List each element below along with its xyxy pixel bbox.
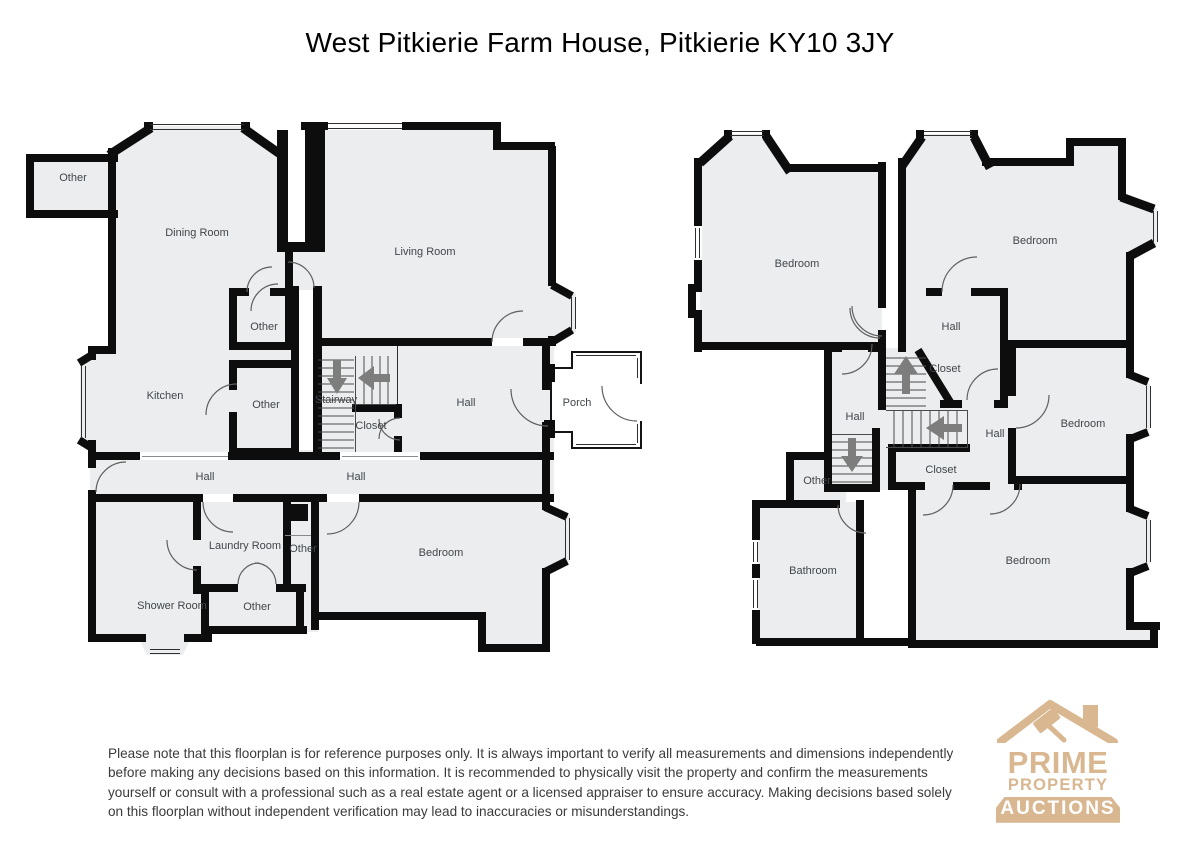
ground-floor-room-label: Hall (347, 471, 366, 483)
ground-floor-room-label: Other (250, 321, 278, 333)
first-floor-room-label: Bedroom (775, 258, 820, 270)
first-floor-room-label: Bathroom (789, 565, 837, 577)
floorplan-page: West Pitkierie Farm House, Pitkierie KY1… (0, 0, 1200, 848)
logo-roof-gavel-icon (997, 697, 1119, 743)
first-floor-room-label: Hall (846, 411, 865, 423)
logo-line-prime: PRIME (996, 748, 1120, 777)
ground-floor-room-label: Stairway (315, 394, 357, 406)
logo-line-auctions: AUCTIONS (996, 797, 1120, 823)
ground-floor-room-label: Other (252, 399, 280, 411)
first-floor-room-label: Bedroom (1061, 418, 1106, 430)
ground-floor-room-label: Bedroom (419, 547, 464, 559)
first-floor-room-label: Bedroom (1013, 235, 1058, 247)
ground-floor-room-label: Closet (355, 420, 386, 432)
ground-floor-room-label: Living Room (394, 246, 455, 258)
ground-floor-room-label: Shower Room (137, 600, 207, 612)
first-floor-room-label: Bedroom (1006, 555, 1051, 567)
first-floor-room-label: Hall (986, 428, 1005, 440)
disclaimer-text: Please note that this floorplan is for r… (108, 744, 954, 821)
ground-floor-plan (26, 122, 645, 655)
first-floor-plan (688, 130, 1160, 648)
ground-floor-room-label: Porch (563, 397, 592, 409)
ground-floor-room-label: Other (59, 172, 87, 184)
logo-line-property: PROPERTY (996, 777, 1120, 794)
first-floor-room-label: Hall (942, 321, 961, 333)
ground-floor-room-label: Other (289, 543, 317, 555)
first-floor-room-label: Closet (929, 363, 960, 375)
ground-floor-room-label: Other (243, 601, 271, 613)
ground-floor-room-label: Laundry Room (209, 540, 281, 552)
agency-logo: PRIME PROPERTY AUCTIONS (996, 697, 1120, 823)
ground-floor-room-label: Kitchen (147, 390, 184, 402)
first-floor-room-label: Other (803, 475, 831, 487)
ground-floor-room-label: Dining Room (165, 227, 229, 239)
ground-floor-room-label: Hall (196, 471, 215, 483)
first-floor-room-label: Closet (925, 464, 956, 476)
ground-floor-room-label: Hall (457, 397, 476, 409)
